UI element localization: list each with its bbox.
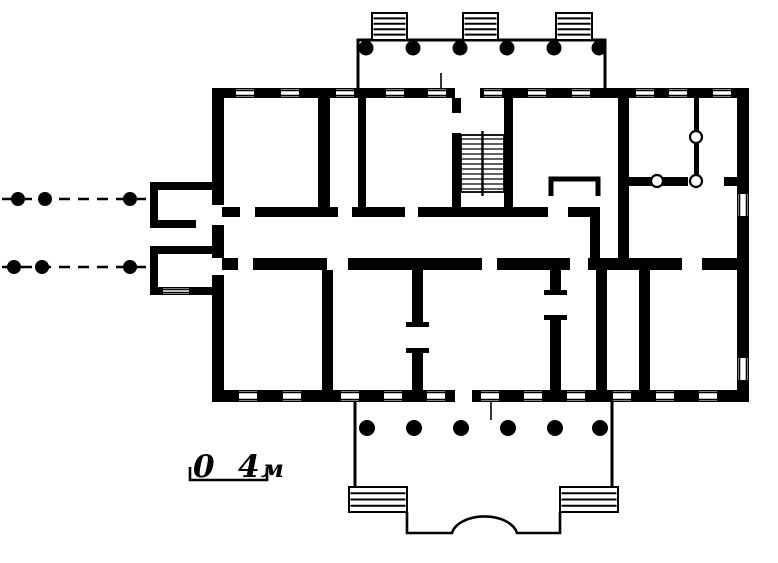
axis-dot (7, 260, 21, 274)
column (453, 41, 468, 56)
bottom-portico-columns (359, 420, 608, 436)
stair-hall-wall (452, 133, 461, 207)
column (359, 420, 375, 436)
colonnade-wall-seg (724, 177, 737, 186)
right-section-wall (618, 98, 629, 270)
door-jamb (544, 315, 567, 320)
column (500, 420, 516, 436)
porch-wall (150, 182, 212, 190)
apse-step-outline (407, 512, 560, 533)
column (500, 41, 515, 56)
colonnade-wall-seg (629, 177, 652, 186)
corridor-upper-seg (222, 207, 240, 217)
room-divider (412, 270, 423, 327)
axis-dot (38, 192, 52, 206)
porch-wall (150, 246, 212, 254)
room-divider (550, 315, 561, 390)
stair-flight (463, 13, 498, 40)
floor-plan-drawing: 0 4 м (0, 0, 778, 563)
room-divider-thin (358, 98, 366, 207)
corridor-upper-seg (352, 207, 405, 217)
corridor-lower-seg (348, 258, 482, 270)
corridor-walls (222, 207, 737, 270)
left-wall-lower (212, 275, 224, 402)
stair-hall-wall (504, 98, 513, 207)
top-portico-columns (359, 41, 607, 56)
interior-walls-lower (322, 270, 650, 390)
corridor-upper-seg (418, 207, 548, 217)
scale-bar: 0 4 м (190, 449, 284, 485)
corridor-lower-seg (253, 258, 327, 270)
axis-dot (123, 260, 137, 274)
corridor-upper-seg (255, 207, 338, 217)
left-wall-mid (212, 225, 224, 258)
floor-plan-scan: 0 4 м (0, 0, 778, 563)
room-divider (322, 270, 333, 390)
corridor-lower-seg (702, 258, 737, 270)
approach-axis (2, 260, 150, 274)
column (592, 41, 607, 56)
room-divider (596, 270, 607, 390)
bottom-portico (349, 402, 618, 533)
top-portico-platform (358, 40, 605, 88)
right-wall (737, 88, 749, 402)
interior-column (690, 131, 702, 143)
porch-wall (150, 220, 196, 228)
interior-walls-upper (318, 96, 737, 270)
colonnade-wall-seg (662, 177, 688, 186)
top-portico (358, 13, 607, 88)
door-recess-partition (551, 179, 598, 196)
interior-column (651, 175, 663, 187)
corridor-lower-seg (588, 258, 682, 270)
approach-axis (2, 192, 150, 206)
room-divider (318, 98, 330, 207)
axis-dot (35, 260, 49, 274)
door-jamb (406, 348, 429, 353)
stair-hall-wall (452, 98, 461, 113)
bottom-portico-stairs (349, 487, 618, 512)
column (406, 41, 421, 56)
door-jamb (544, 290, 567, 295)
top-wall-right-segment (480, 88, 747, 98)
column (359, 41, 374, 56)
stair-flight (556, 13, 592, 40)
left-wall-upper (212, 88, 224, 205)
approach-axes (2, 192, 150, 274)
room-divider (639, 270, 650, 390)
column (406, 420, 422, 436)
main-staircase (461, 131, 504, 196)
column (547, 420, 563, 436)
interior-column (690, 175, 702, 187)
entry-porch-upper (150, 182, 212, 228)
corridor-lower-seg (497, 258, 570, 270)
corridor-lower-seg (222, 258, 238, 270)
room-divider (412, 348, 423, 390)
stair-flight (372, 13, 407, 40)
axis-dot (123, 192, 137, 206)
column (547, 41, 562, 56)
entry-porch-lower (150, 246, 212, 295)
scale-label-unit: м (261, 454, 284, 483)
column (592, 420, 608, 436)
top-portico-stairs (372, 13, 592, 40)
column (453, 420, 469, 436)
door-jamb (406, 322, 429, 327)
axis-dot (11, 192, 25, 206)
